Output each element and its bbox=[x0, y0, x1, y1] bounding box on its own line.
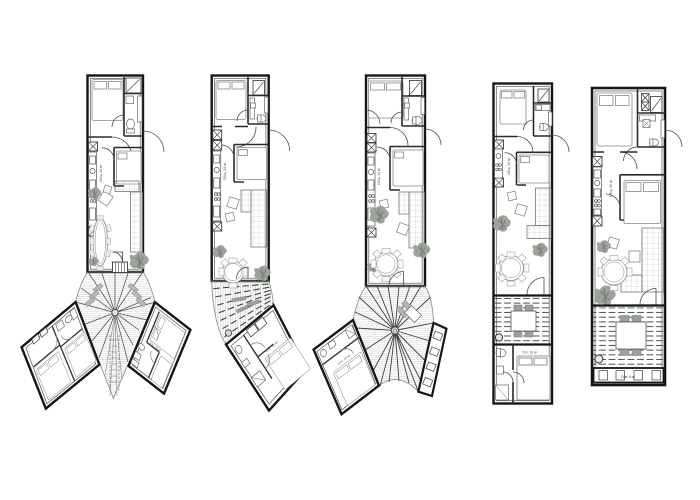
svg-text:Спл. 16 м²: Спл. 16 м² bbox=[522, 351, 537, 355]
svg-text:Опв. 4 м²: Опв. 4 м² bbox=[621, 375, 636, 379]
svg-text:Общ. 34 м²: Общ. 34 м² bbox=[377, 167, 381, 185]
svg-text:Общ. 34 м²: Общ. 34 м² bbox=[99, 164, 103, 182]
svg-text:Общ. 34 м²: Общ. 34 м² bbox=[223, 162, 227, 180]
svg-text:Общ. 34 м²: Общ. 34 м² bbox=[507, 157, 511, 175]
